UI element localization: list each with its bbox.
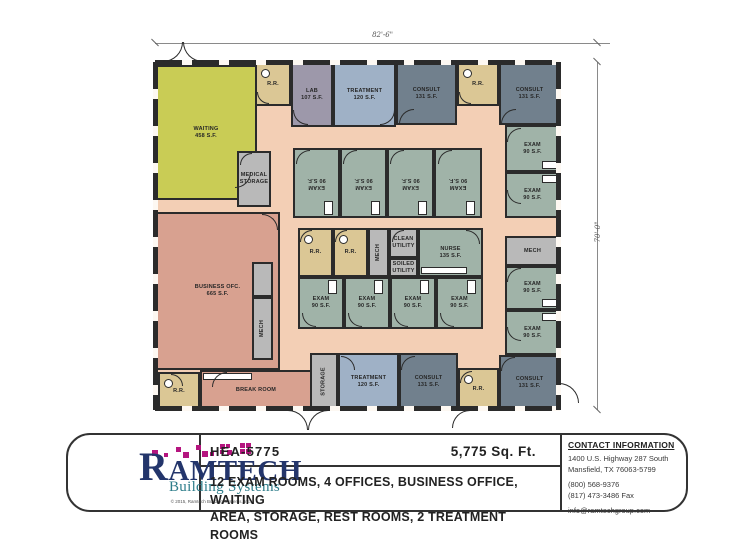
furniture-fixture [467, 280, 476, 294]
furniture-fixture [203, 373, 252, 380]
door-arc [183, 42, 203, 62]
dimension-height-label: 70'-0" [594, 212, 602, 252]
contact-email[interactable]: info@ramtechgroup.com [568, 506, 683, 517]
exterior-wall-windows-left [153, 62, 158, 410]
door-arc [452, 410, 470, 428]
dimension-width-label: 82'-6" [155, 31, 610, 39]
furniture-fixture [328, 280, 337, 294]
plan-model-number: HEA-5775 [210, 444, 280, 459]
room-mech-right: MECH [505, 236, 560, 266]
exterior-wall-windows-top [155, 60, 560, 65]
room-label: MECH [233, 320, 292, 337]
furniture-fixture [418, 201, 427, 215]
toilet-fixture [463, 69, 472, 78]
furniture-fixture [324, 201, 333, 215]
room-soiled-utility: SOILEDUTILITY [389, 258, 418, 277]
contact-phone: (800) 568-9376 [568, 480, 683, 491]
toilet-fixture [261, 69, 270, 78]
furniture-fixture [542, 161, 557, 169]
furniture-fixture [421, 267, 467, 274]
room-mech-left: MECH [252, 297, 273, 360]
door-arc [308, 410, 328, 430]
contact-information: CONTACT INFORMATION 1400 U.S. Highway 28… [568, 439, 683, 517]
door-arc [163, 42, 183, 62]
contact-address-line2: Mansfield, TX 76063-5799 [568, 465, 683, 476]
room-label: SOILEDUTILITY [391, 260, 416, 275]
floor-plan-sheet: 82'-6" 70'-0" WAITING458 S.F.R.R.LAB107 … [0, 0, 750, 547]
room-storage-bottom: STORAGE [310, 353, 338, 410]
room-mech-core: MECH [368, 228, 389, 277]
furniture-fixture [371, 201, 380, 215]
room-label: MECH [507, 238, 558, 264]
plan-description-line2: AREA, STORAGE, REST ROOMS, 2 TREATMENT R… [210, 509, 555, 544]
furniture-fixture [420, 280, 429, 294]
exterior-wall-windows-bottom [155, 406, 560, 411]
furniture-fixture [466, 201, 475, 215]
contact-address-line1: 1400 U.S. Highway 287 South [568, 454, 683, 465]
room-label [254, 264, 271, 295]
door-arc [559, 383, 579, 403]
contact-fax: (817) 473-3486 Fax [568, 491, 683, 502]
furniture-fixture [542, 313, 557, 321]
room-util-closet [252, 262, 273, 297]
exterior-wall-windows-right [556, 62, 561, 410]
title-block: RAMTECH Building Systems © 2015, Ramtech… [66, 433, 688, 512]
dimension-line-top [155, 43, 610, 44]
title-block-divider [560, 435, 562, 510]
door-arc [288, 410, 308, 430]
plan-description: 12 EXAM ROOMS, 4 OFFICES, BUSINESS OFFIC… [210, 474, 555, 544]
plan-square-footage: 5,775 Sq. Ft. [451, 444, 536, 459]
contact-heading: CONTACT INFORMATION [568, 439, 683, 451]
plan-description-line1: 12 EXAM ROOMS, 4 OFFICES, BUSINESS OFFIC… [210, 474, 555, 509]
furniture-fixture [542, 175, 557, 183]
furniture-fixture [542, 299, 557, 307]
furniture-fixture [374, 280, 383, 294]
